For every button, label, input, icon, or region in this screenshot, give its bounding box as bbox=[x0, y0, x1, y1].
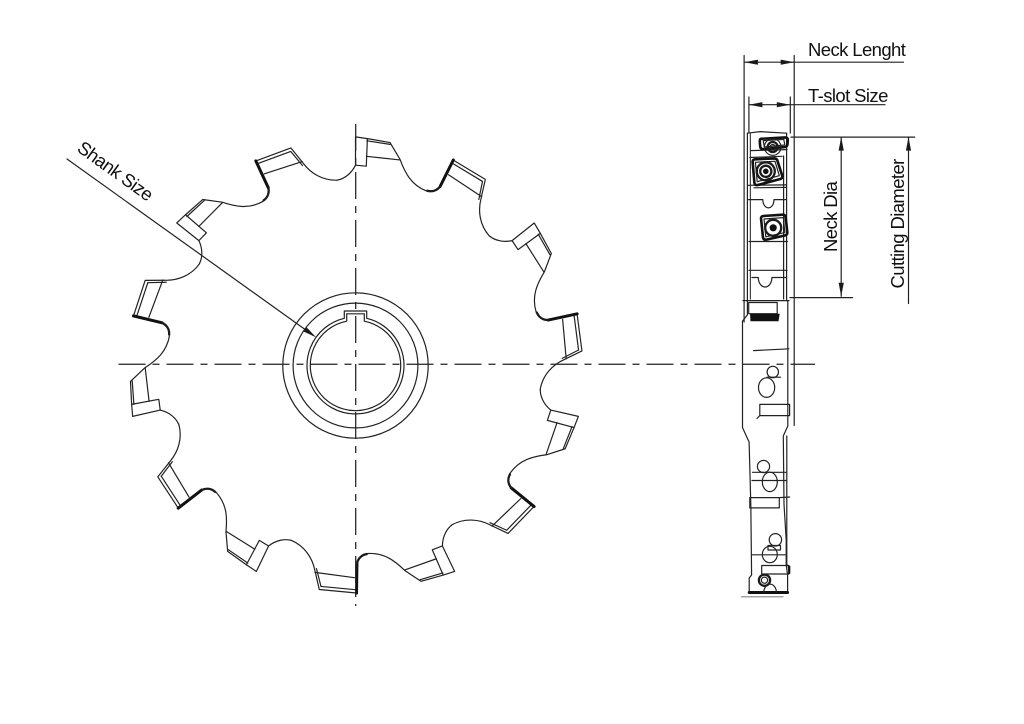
svg-text:T-slot Size: T-slot Size bbox=[808, 85, 888, 106]
svg-text:Neck Dia: Neck Dia bbox=[820, 180, 841, 252]
svg-text:Neck Lenght: Neck Lenght bbox=[808, 39, 906, 60]
svg-text:Cutting Diameter: Cutting Diameter bbox=[887, 159, 908, 289]
